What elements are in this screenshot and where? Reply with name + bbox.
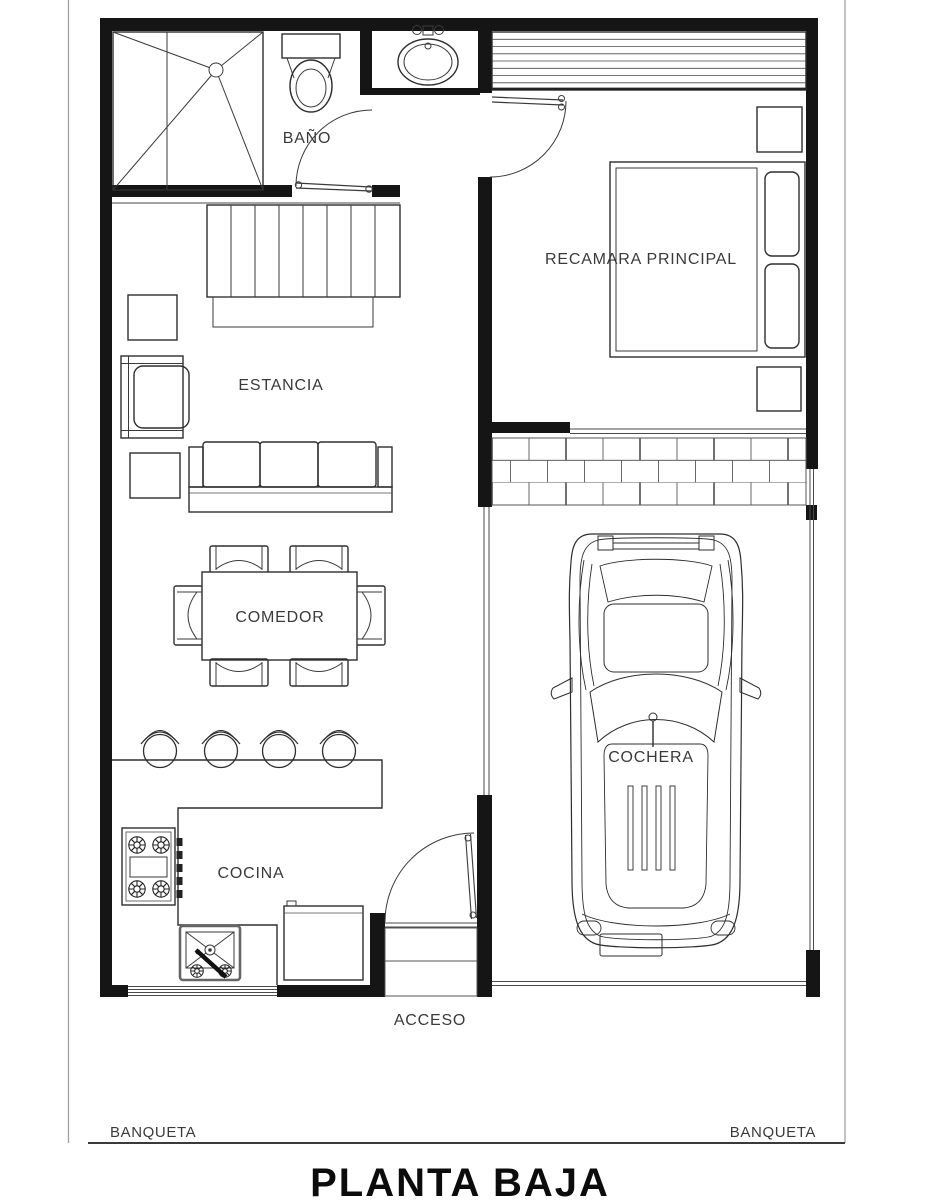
closet bbox=[492, 32, 806, 90]
sofa bbox=[189, 442, 392, 512]
headlight bbox=[711, 921, 735, 935]
stove bbox=[122, 828, 183, 905]
sheet-frame bbox=[69, 0, 846, 1143]
grille bbox=[628, 786, 675, 870]
license-plate bbox=[600, 934, 662, 956]
entry-step bbox=[385, 961, 477, 996]
pillow bbox=[765, 264, 799, 348]
stairs bbox=[207, 205, 400, 327]
bar-stool bbox=[202, 731, 240, 768]
patio-pavers bbox=[492, 438, 806, 505]
sofa-cushion bbox=[260, 442, 318, 487]
bar-stool bbox=[320, 731, 358, 768]
label-master-bedroom: RECAMARA PRINCIPAL bbox=[545, 251, 737, 268]
stairs-landing bbox=[213, 297, 373, 327]
bathroom-door bbox=[295, 110, 372, 192]
dining-chair bbox=[356, 586, 385, 645]
wall-bedroom-bottom bbox=[490, 422, 570, 433]
label-sidewalk-left: BANQUETA bbox=[110, 1124, 196, 1141]
wall-left bbox=[100, 18, 112, 997]
label-bathroom: BAÑO bbox=[283, 127, 332, 147]
dining-chair bbox=[210, 546, 268, 573]
dining-chair bbox=[290, 659, 348, 686]
label-entrance: ACCESO bbox=[394, 1012, 466, 1029]
sofa-cushion bbox=[318, 442, 376, 487]
label-kitchen: COCINA bbox=[217, 865, 284, 882]
shower-drain bbox=[209, 63, 223, 77]
bedroom-door bbox=[490, 96, 566, 178]
label-dining-room: COMEDOR bbox=[235, 609, 324, 626]
floor-plan-sheet: BAÑO RECAMARA PRINCIPAL ESTANCIA COMEDOR… bbox=[0, 0, 927, 1200]
dining-chair bbox=[210, 659, 268, 686]
doors bbox=[295, 96, 566, 923]
dining-chair bbox=[174, 586, 203, 645]
car-top-view bbox=[551, 534, 761, 956]
walls bbox=[100, 18, 820, 997]
toilet bbox=[282, 34, 340, 112]
armchair bbox=[121, 356, 189, 438]
plan-title: PLANTA BAJA bbox=[310, 1161, 610, 1200]
side-table bbox=[130, 453, 180, 498]
floor-plan-drawing: BAÑO RECAMARA PRINCIPAL ESTANCIA COMEDOR… bbox=[0, 0, 927, 1200]
wall-entry-garage bbox=[477, 795, 492, 997]
wall-bathroom-bottom bbox=[112, 185, 292, 197]
dining-chair bbox=[290, 546, 348, 573]
wall-center bbox=[478, 177, 492, 507]
bar-stool bbox=[141, 731, 179, 768]
kitchen-sink bbox=[180, 926, 240, 980]
label-sidewalk-right: BANQUETA bbox=[730, 1124, 816, 1141]
shower bbox=[113, 32, 263, 190]
entry-step bbox=[385, 928, 477, 961]
side-mirror bbox=[551, 678, 572, 699]
wall-center-top bbox=[478, 18, 492, 93]
master-bedroom-furniture bbox=[492, 32, 806, 411]
headlight bbox=[577, 921, 601, 935]
sofa-cushion bbox=[203, 442, 260, 487]
bathroom-fixtures bbox=[113, 26, 458, 191]
living-room-furniture bbox=[121, 295, 392, 512]
rear-window bbox=[600, 559, 712, 602]
label-garage: COCHERA bbox=[608, 749, 694, 766]
refrigerator bbox=[284, 901, 363, 980]
car-roof bbox=[604, 604, 708, 672]
wall-right bbox=[806, 18, 818, 469]
kitchen bbox=[112, 731, 382, 986]
side-mirror bbox=[740, 678, 761, 699]
label-living-room: ESTANCIA bbox=[238, 377, 323, 394]
nightstand bbox=[757, 367, 801, 411]
nightstand bbox=[757, 107, 802, 152]
side-table bbox=[128, 295, 177, 340]
entry-door bbox=[385, 833, 477, 922]
bathroom-sink bbox=[398, 26, 458, 86]
bar-stool bbox=[260, 731, 298, 768]
pillow bbox=[765, 172, 799, 256]
windshield bbox=[590, 674, 722, 742]
wall-entry-kitchen bbox=[370, 913, 385, 997]
front-bumper bbox=[582, 914, 730, 926]
wall-top bbox=[100, 18, 818, 31]
car-body bbox=[569, 534, 742, 948]
roof-rack bbox=[613, 543, 699, 549]
